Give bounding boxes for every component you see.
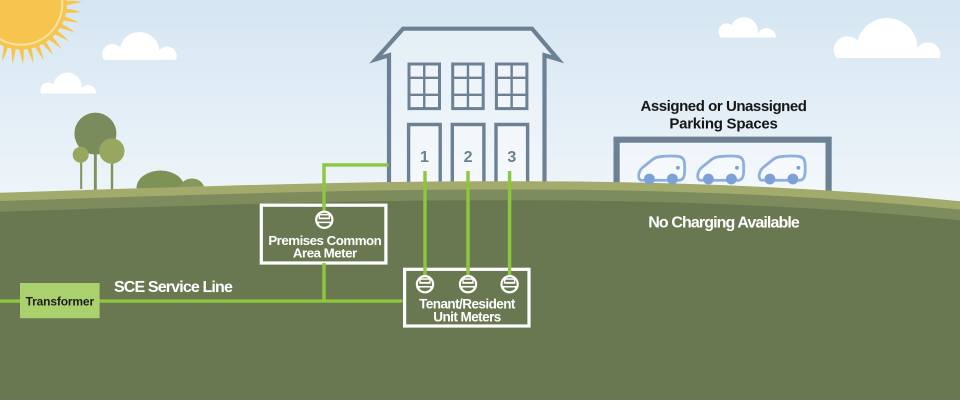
svg-text:No Charging Available: No Charging Available <box>648 214 800 231</box>
svg-text:Assigned or Unassigned: Assigned or Unassigned <box>641 98 807 115</box>
svg-text:Area Meter: Area Meter <box>293 246 357 261</box>
svg-text:Transformer: Transformer <box>26 294 95 308</box>
svg-text:3: 3 <box>507 149 516 166</box>
svg-text:Unit Meters: Unit Meters <box>433 309 501 324</box>
svg-text:Parking Spaces: Parking Spaces <box>669 116 777 133</box>
svg-text:SCE Service Line: SCE Service Line <box>114 279 233 296</box>
svg-text:1: 1 <box>420 149 429 166</box>
svg-text:2: 2 <box>464 149 473 166</box>
